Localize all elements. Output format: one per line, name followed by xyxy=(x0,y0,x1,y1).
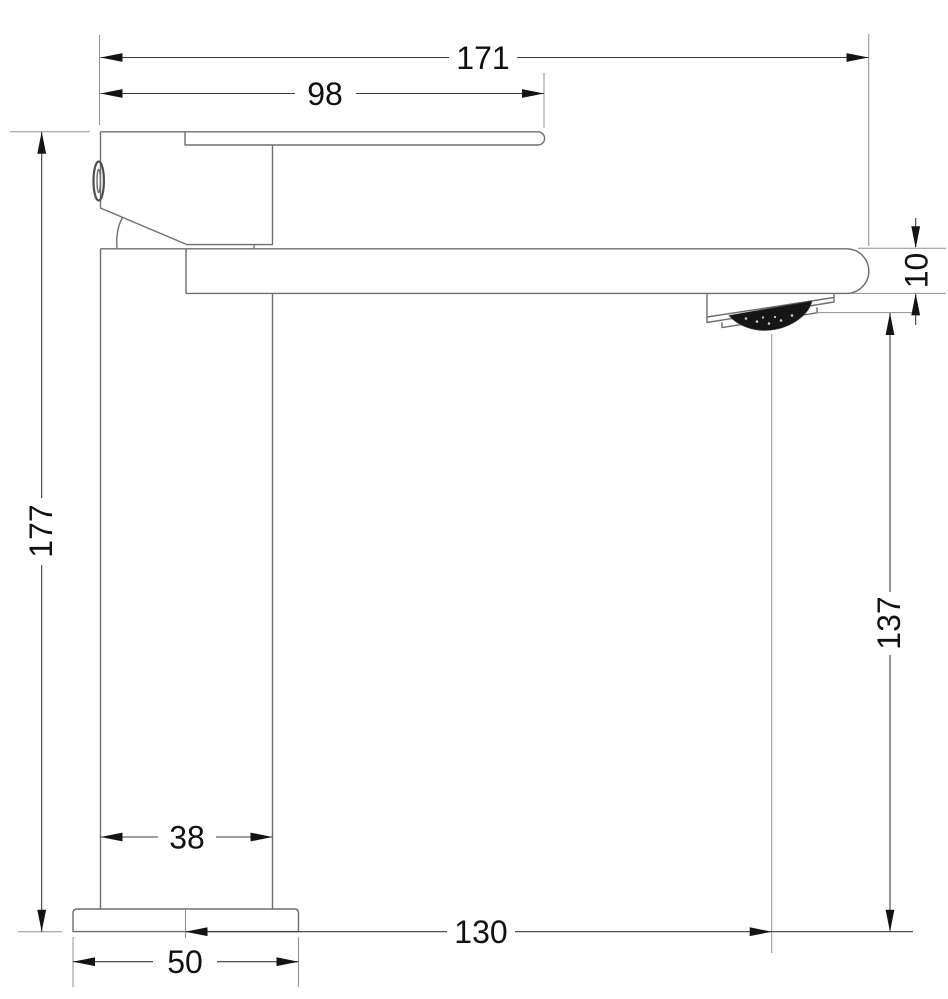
arrowhead-down-icon xyxy=(886,910,895,932)
aerator-mesh-icon xyxy=(729,301,812,330)
faucet-outline xyxy=(73,132,869,932)
dimension-overall-length: 171 xyxy=(101,40,869,76)
arrowhead-left-icon xyxy=(186,927,208,936)
arrowhead-up-icon xyxy=(911,293,920,315)
dimension-outlet-to-base: 137 xyxy=(871,313,907,932)
dim-label-spout-thickness: 10 xyxy=(899,253,935,289)
arrowhead-left-icon xyxy=(73,957,95,966)
dimension-base-width: 50 xyxy=(73,944,299,980)
arrowhead-right-icon xyxy=(522,89,544,98)
dimension-overall-height: 177 xyxy=(23,132,59,932)
arrowhead-right-icon xyxy=(277,957,299,966)
handle-lever-outline xyxy=(101,132,545,145)
dimension-spout-thickness: 10 xyxy=(899,218,935,325)
arrowhead-right-icon xyxy=(847,53,869,62)
arrowhead-up-icon xyxy=(37,132,46,154)
pivot-lens-inner-icon xyxy=(97,170,100,193)
arrowhead-left-icon xyxy=(101,833,123,842)
dim-label-overall-height: 177 xyxy=(23,504,59,557)
faucet-dimension-drawing: 171 98 177 10 137 38 130 xyxy=(0,0,948,999)
body-front-fillet-arc xyxy=(117,218,123,249)
dim-label-overall-length: 171 xyxy=(456,40,509,76)
arrowhead-up-icon xyxy=(886,313,895,335)
arrowhead-right-icon xyxy=(750,927,772,936)
dim-label-outlet-to-base: 137 xyxy=(871,596,907,649)
extension-lines xyxy=(10,34,946,987)
arrowhead-left-icon xyxy=(101,53,123,62)
dim-label-base-width: 50 xyxy=(167,944,203,980)
spout-barrel-outline xyxy=(101,249,869,294)
technical-drawing-canvas: 171 98 177 10 137 38 130 xyxy=(0,0,948,999)
dim-label-column-width: 38 xyxy=(169,820,205,856)
dim-label-outlet-projection: 130 xyxy=(454,914,507,950)
arrowhead-down-icon xyxy=(911,226,920,248)
arrowhead-down-icon xyxy=(37,910,46,932)
arrowhead-left-icon xyxy=(101,89,123,98)
dimension-outlet-projection: 130 xyxy=(186,914,914,950)
arrowhead-right-icon xyxy=(251,833,273,842)
body-outline xyxy=(101,132,273,245)
dim-label-handle-reach: 98 xyxy=(307,76,343,112)
pivot-lens-outer-icon xyxy=(94,162,104,201)
dimension-handle-reach: 98 xyxy=(101,76,545,112)
dimension-column-width: 38 xyxy=(101,820,273,856)
